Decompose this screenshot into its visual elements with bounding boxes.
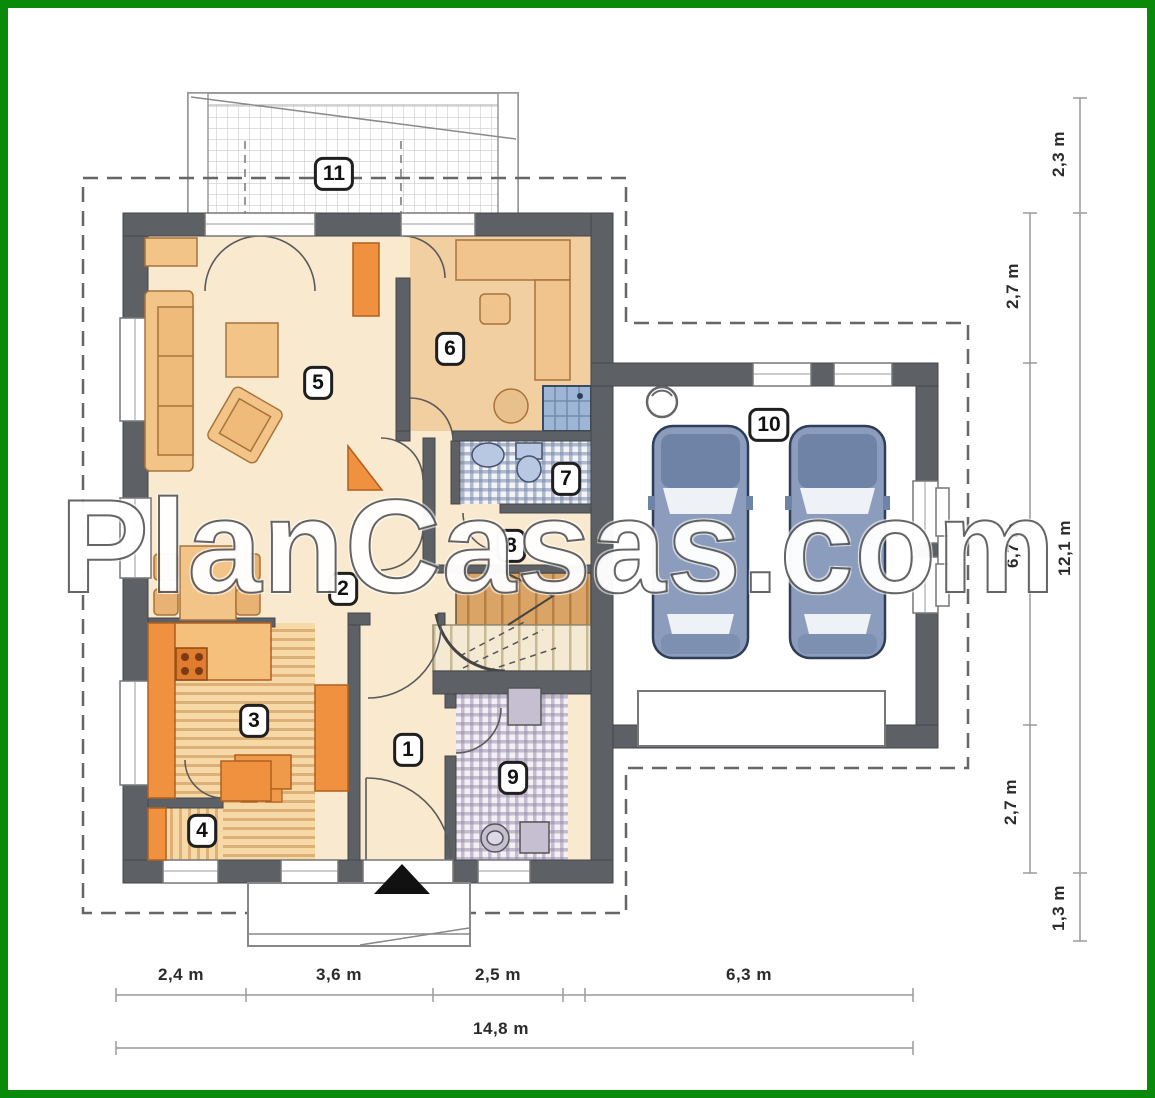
car-1	[648, 426, 753, 658]
stairs	[433, 573, 591, 674]
room-label-wc: 9	[498, 761, 528, 795]
room-label-dining: 2	[328, 572, 358, 606]
dim-bottom-total: 14,8 m	[473, 1019, 529, 1039]
floor-plan-page: 1 2 3 4 5 6 7 8 9 10 11 2,4 m 3,6 m 2,5 …	[0, 0, 1155, 1098]
dim-bottom-3-6: 3,6 m	[316, 965, 362, 985]
floor-plan-svg	[8, 8, 1155, 1098]
room-label-room6: 6	[435, 332, 465, 366]
dim-right-6-7: 6,7 m	[1003, 522, 1023, 568]
room-label-kitchen: 3	[239, 704, 269, 738]
dim-right-2-7-bottom: 2,7 m	[1001, 779, 1021, 825]
dim-right-12-1: 12,1 m	[1055, 520, 1075, 576]
room-label-bathroom: 7	[551, 462, 581, 496]
dim-right-2-3: 2,3 m	[1049, 131, 1069, 177]
garage-door	[638, 691, 885, 746]
dim-bottom-2-5: 2,5 m	[475, 965, 521, 985]
terrace	[188, 93, 518, 223]
room-label-living-room: 5	[303, 366, 333, 400]
dim-right-1-3: 1,3 m	[1049, 885, 1069, 931]
car-2	[785, 426, 890, 658]
dim-bottom-6-3: 6,3 m	[726, 965, 772, 985]
room-label-pantry: 4	[187, 814, 217, 848]
room-label-terrace: 11	[314, 157, 354, 191]
room-label-hall: 1	[393, 733, 423, 767]
room-label-hall-upper: 8	[496, 529, 526, 563]
dim-right-2-7-top: 2,7 m	[1003, 263, 1023, 309]
room-label-garage: 10	[748, 408, 789, 442]
dim-bottom-2-4: 2,4 m	[158, 965, 204, 985]
